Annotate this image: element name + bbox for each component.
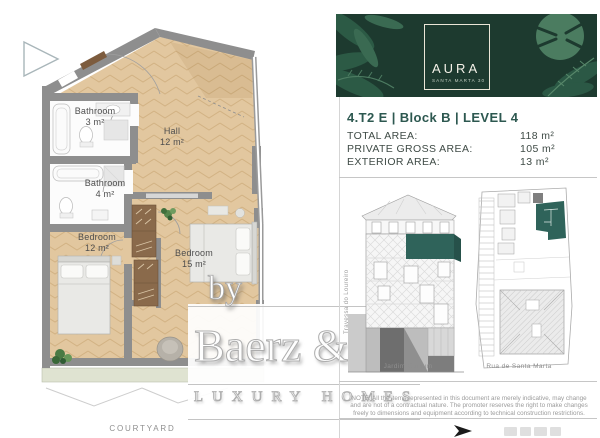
entry-arrow-icon — [24, 42, 58, 76]
elevation-caption: Jardim Comum — [367, 363, 449, 370]
room-area: 12 m² — [62, 243, 132, 254]
area-label: EXTERIOR AREA: — [347, 156, 440, 168]
room-label-bedroom-12: Bedroom 12 m² — [62, 232, 132, 253]
room-name: Bedroom — [166, 248, 222, 259]
room-label-bathroom-4: Bathroom 4 m² — [73, 178, 137, 199]
area-label: PRIVATE GROSS AREA: — [347, 143, 473, 155]
divider — [339, 418, 597, 419]
brochure-page: Bathroom 3 m² Hall 12 m² Bathroom 4 m² B… — [0, 0, 600, 438]
watermark-by: by — [208, 270, 242, 308]
site-plan — [476, 188, 572, 368]
brand-banner: AURA SANTA MARTA 30 — [336, 14, 597, 97]
glazed-partition — [146, 194, 198, 199]
area-row-exterior: EXTERIOR AREA: 13 m² — [347, 156, 592, 169]
courtyard-label: COURTYARD — [95, 424, 190, 433]
area-value: 13 m² — [520, 156, 549, 168]
area-value: 118 m² — [520, 130, 554, 142]
room-label-bedroom-15: Bedroom 15 m² — [166, 248, 222, 269]
room-name: Bathroom — [73, 178, 137, 189]
room-area: 15 m² — [166, 259, 222, 270]
area-label: TOTAL AREA: — [347, 130, 418, 142]
room-name: Bathroom — [60, 106, 130, 117]
aura-logo-text: AURA — [432, 61, 480, 76]
partner-logo-partial — [446, 424, 586, 438]
room-label-bathroom-3: Bathroom 3 m² — [60, 106, 130, 127]
street-label-vertical: Travessa do Loureiro — [344, 270, 350, 334]
room-label-hall: Hall 12 m² — [147, 126, 197, 147]
watermark-rule — [188, 384, 420, 385]
room-area: 4 m² — [73, 189, 137, 200]
building-elevation-and-site-plan — [348, 186, 596, 378]
disclaimer-text: NOTE: All the items represented in this … — [347, 395, 591, 417]
wardrobes — [132, 205, 158, 306]
room-area: 12 m² — [147, 137, 197, 148]
area-value: 105 m² — [520, 143, 555, 155]
room-name: Hall — [147, 126, 197, 137]
awning-line — [46, 388, 142, 406]
armchair — [157, 337, 183, 361]
area-row-private: PRIVATE GROSS AREA: 105 m² — [347, 143, 592, 156]
divider — [339, 177, 597, 178]
building-elevation — [348, 195, 464, 372]
divider — [339, 381, 597, 382]
area-row-total: TOTAL AREA: 118 m² — [347, 130, 592, 143]
panel-divider-vertical — [339, 97, 340, 438]
watermark-rule — [188, 419, 420, 420]
room-name: Bedroom — [62, 232, 132, 243]
level4-highlight — [406, 234, 454, 259]
room-area: 3 m² — [60, 117, 130, 128]
site-plan-caption: Rua de Santa Marta — [467, 363, 571, 370]
aura-logo-subtitle: SANTA MARTA 30 — [432, 78, 485, 83]
unit-title: 4.T2 E | Block B | LEVEL 4 — [347, 110, 518, 125]
aura-logo: AURA SANTA MARTA 30 — [424, 24, 490, 90]
